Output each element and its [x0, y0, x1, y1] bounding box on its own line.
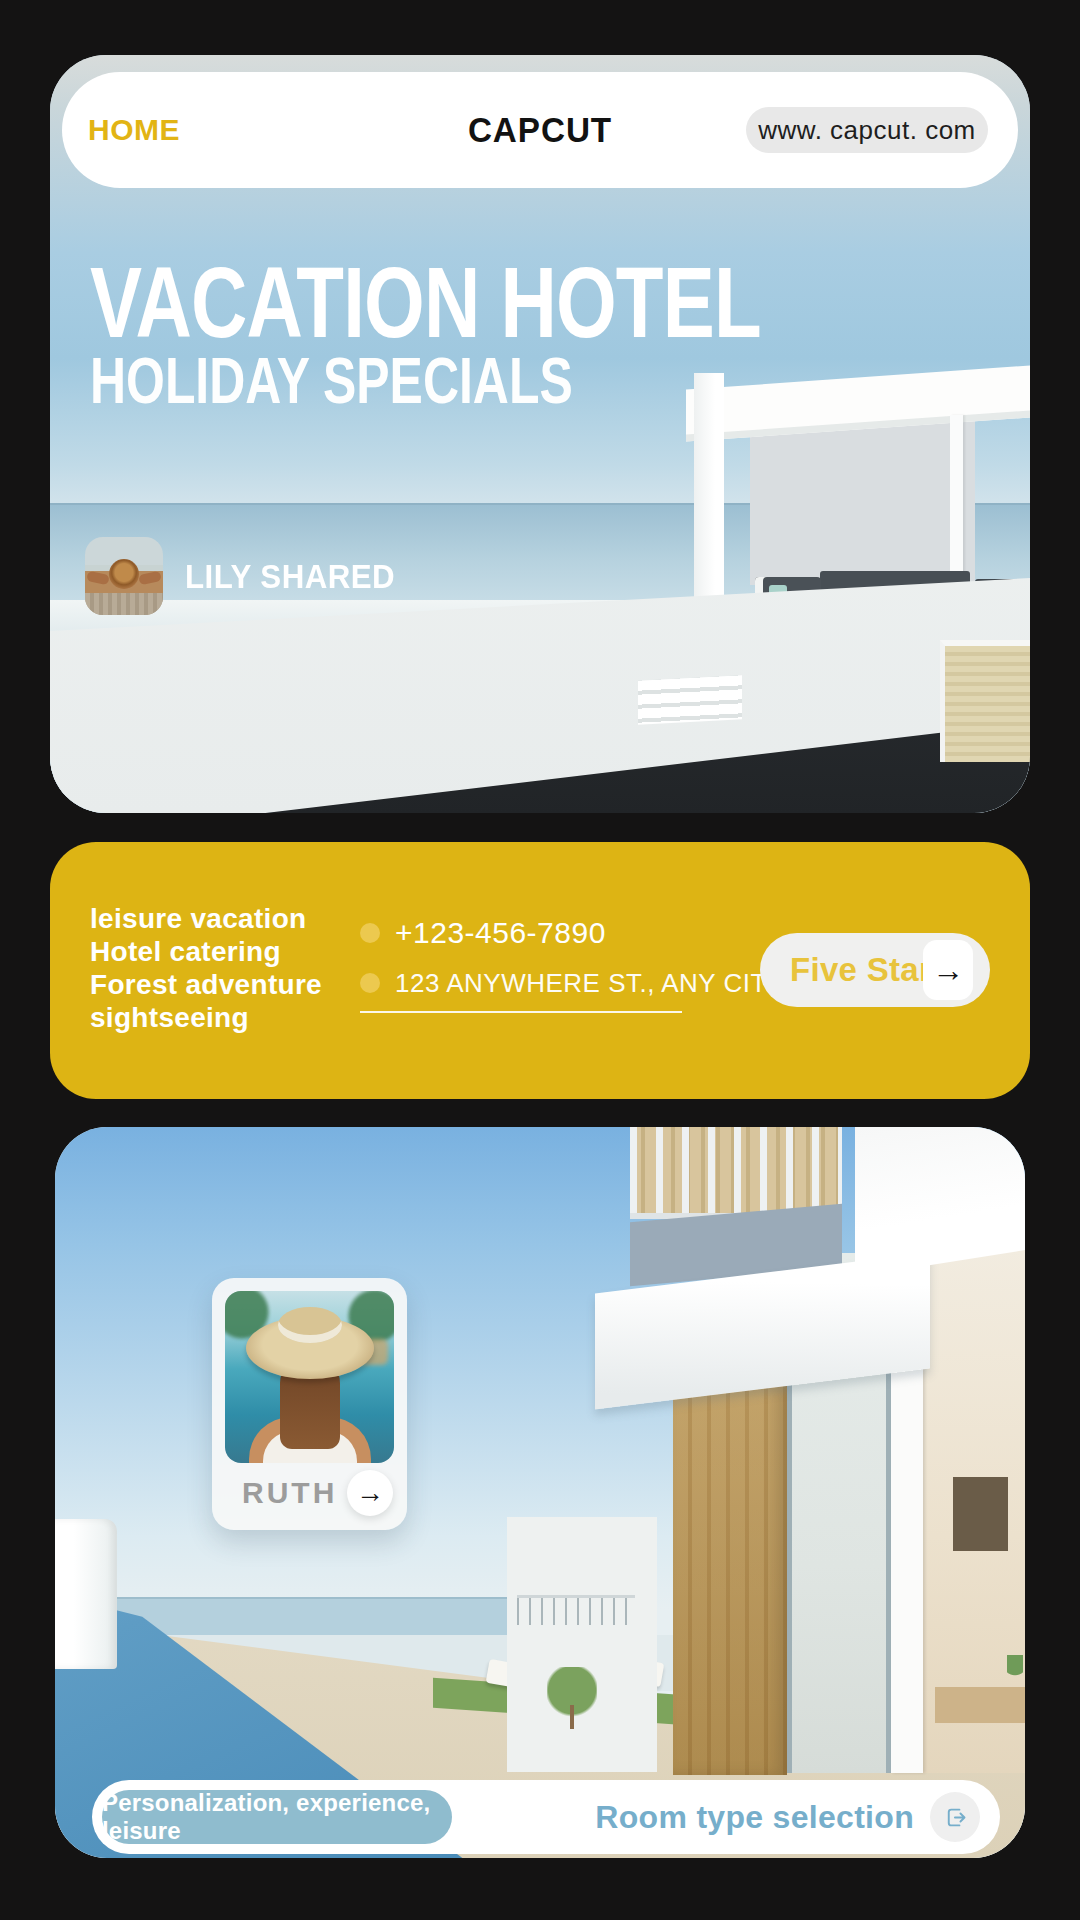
info-card: leisure vacation Hotel catering Forest a… — [50, 842, 1030, 1099]
contact-block: +123-456-7890 123 ANYWHERE ST., ANY CITY — [360, 918, 785, 1013]
guest-card[interactable]: RUTH → — [212, 1278, 407, 1530]
service-item: Hotel catering — [90, 935, 322, 968]
straw-hat-crown — [278, 1307, 342, 1343]
building-far-wall — [507, 1517, 657, 1772]
address-underline — [360, 1011, 682, 1013]
pergola-back-wall — [750, 415, 975, 585]
phone-number: +123-456-7890 — [395, 916, 606, 950]
shared-by-label: LILY SHARED — [185, 557, 413, 596]
cabana-curtain — [55, 1519, 117, 1669]
service-item: sightseeing — [90, 1001, 322, 1034]
five-stars-button[interactable]: Five Stars → — [760, 933, 990, 1007]
home-link[interactable]: HOME — [88, 113, 180, 147]
building-far-railing — [517, 1595, 635, 1625]
top-nav-bar: HOME CAPCUT www. capcut. com — [62, 72, 1018, 188]
address-text: 123 ANYWHERE ST., ANY CITY — [395, 968, 785, 999]
hero-subtitle: HOLIDAY SPECIALS — [90, 349, 709, 413]
arrow-right-icon: → — [923, 940, 973, 1000]
pergola-column — [950, 415, 963, 583]
page-background: HOME CAPCUT www. capcut. com VACATION HO… — [0, 0, 1080, 1920]
brand-title: CAPCUT — [468, 110, 612, 150]
guest-photo — [225, 1291, 394, 1463]
hero-stairs — [638, 675, 742, 724]
lily-avatar — [85, 537, 163, 615]
room-bottom-bar: Personalization, experience, leisure Roo… — [92, 1780, 1000, 1854]
tags-pill: Personalization, experience, leisure — [102, 1790, 452, 1844]
room-type-label: Room type selection — [595, 1799, 914, 1836]
avatar-chair — [85, 593, 163, 615]
woven-bench — [940, 640, 1030, 762]
interior-plant — [1007, 1655, 1023, 1681]
room-card: RUTH → Personalization, experience, leis… — [55, 1127, 1025, 1858]
address-row: 123 ANYWHERE ST., ANY CITY — [360, 968, 785, 998]
guest-name: RUTH — [242, 1476, 337, 1510]
service-item: Forest adventure — [90, 968, 322, 1001]
interior-tv — [953, 1477, 1008, 1551]
guest-name-row: RUTH → — [212, 1470, 407, 1516]
shared-by-row: LILY SHARED — [85, 537, 413, 615]
bullet-dot-icon — [360, 973, 380, 993]
straw-hat-icon — [109, 559, 139, 589]
hero-card: HOME CAPCUT www. capcut. com VACATION HO… — [50, 55, 1030, 813]
balcony-railing — [630, 1127, 842, 1219]
bullet-dot-icon — [360, 923, 380, 943]
hero-title: VACATION HOTEL — [90, 252, 950, 352]
phone-row: +123-456-7890 — [360, 918, 785, 948]
services-list: leisure vacation Hotel catering Forest a… — [90, 902, 322, 1034]
interior-sideboard — [935, 1687, 1025, 1723]
avatar-arm — [138, 571, 162, 585]
enter-room-icon — [930, 1792, 980, 1842]
arrow-right-icon[interactable]: → — [347, 1470, 393, 1516]
avatar-arm — [86, 571, 110, 585]
room-type-button[interactable]: Room type selection — [595, 1792, 980, 1842]
wood-pillar — [673, 1383, 787, 1775]
small-tree — [547, 1667, 597, 1725]
site-url-pill[interactable]: www. capcut. com — [746, 107, 988, 153]
service-item: leisure vacation — [90, 902, 322, 935]
